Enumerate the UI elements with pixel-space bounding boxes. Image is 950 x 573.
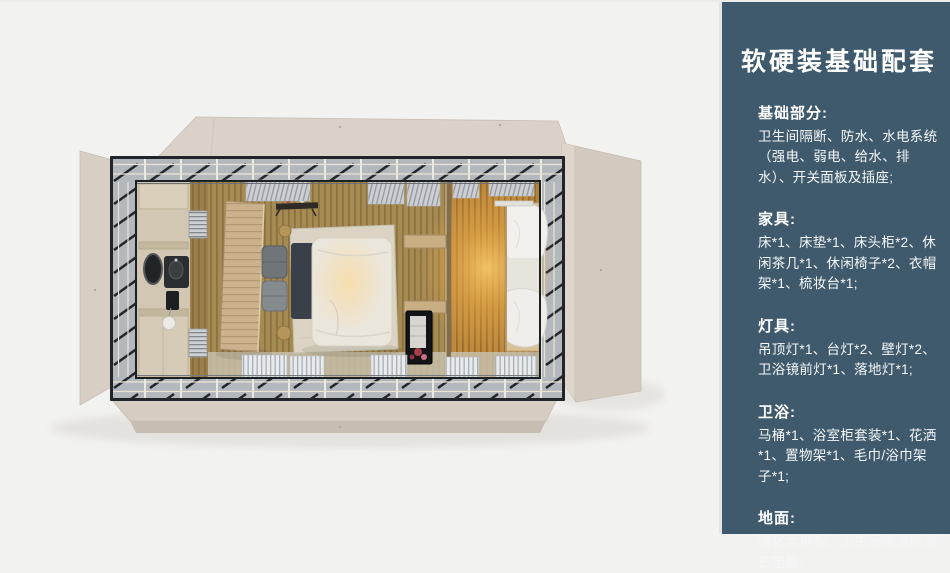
section-body: 床*1、床垫*1、床头柜*2、休闲茶几*1、休闲椅子*2、衣帽架*1、梳妆台*1…	[758, 233, 938, 295]
vanity-mirror	[144, 254, 162, 284]
bed-area	[277, 225, 402, 357]
section-heading: 灯具:	[758, 315, 938, 336]
wall-shelf	[404, 235, 446, 248]
dark-throw	[291, 243, 314, 319]
towel-radiator	[189, 329, 207, 357]
toilet	[163, 317, 176, 330]
wall-shelf	[495, 201, 533, 206]
section-body: 马桶*1、浴室柜套装*1、花洒*1、置物架*1、毛巾/浴巾架子*1;	[758, 426, 938, 488]
section-body: 吊顶灯*1、台灯*2、壁灯*2、卫浴镜前灯*1、落地灯*1;	[758, 340, 938, 381]
info-panel: 软硬装基础配套 基础部分: 卫生间隔断、防水、水电系统（强电、弱电、给水、排水）…	[719, 0, 950, 534]
top-hairline	[0, 0, 950, 2]
bathroom	[137, 182, 208, 378]
section-heading: 地面:	[758, 507, 938, 528]
section-heading: 家具:	[758, 208, 938, 229]
section-bathroom: 卫浴: 马桶*1、浴室柜套装*1、花洒*1、置物架*1、毛巾/浴巾架子*1;	[758, 401, 938, 488]
section-body: 强化木地板、卫生间防滑防潮石塑板;	[758, 532, 938, 573]
room-top-view-render	[0, 0, 722, 534]
render-area	[0, 0, 722, 534]
towel-radiator	[189, 211, 207, 238]
panel-title: 软硬装基础配套	[741, 48, 938, 77]
basket	[277, 326, 291, 340]
basket	[279, 225, 291, 237]
section-lighting: 灯具: 吊顶灯*1、台灯*2、壁灯*2、卫浴镜前灯*1、落地灯*1;	[758, 315, 938, 381]
section-basics: 基础部分: 卫生间隔断、防水、水电系统（强电、弱电、给水、排水）、开关面板及插座…	[758, 102, 938, 189]
section-heading: 基础部分:	[758, 102, 938, 123]
section-body: 卫生间隔断、防水、水电系统（强电、弱电、给水、排水）、开关面板及插座;	[758, 127, 938, 189]
section-furniture: 家具: 床*1、床垫*1、床头柜*2、休闲茶几*1、休闲椅子*2、衣帽架*1、梳…	[758, 208, 938, 295]
section-heading: 卫浴:	[758, 401, 938, 422]
section-flooring: 地面: 强化木地板、卫生间防滑防潮石塑板;	[758, 507, 938, 573]
